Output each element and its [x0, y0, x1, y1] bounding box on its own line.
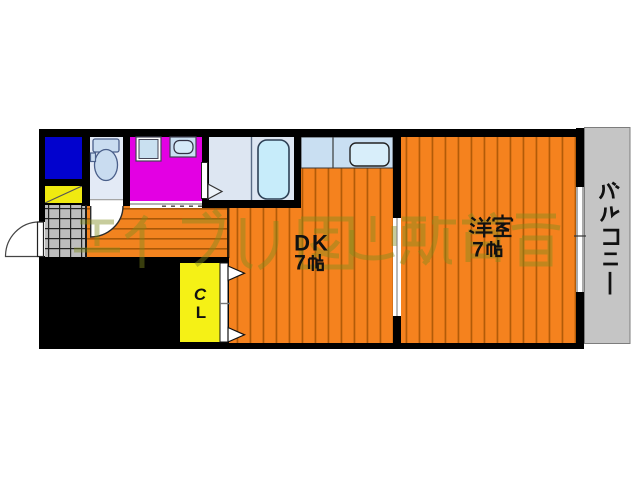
svg-text:7: 7: [294, 252, 306, 275]
svg-text:7: 7: [472, 239, 484, 262]
svg-text:L: L: [196, 303, 206, 322]
svg-text:C: C: [194, 285, 207, 304]
